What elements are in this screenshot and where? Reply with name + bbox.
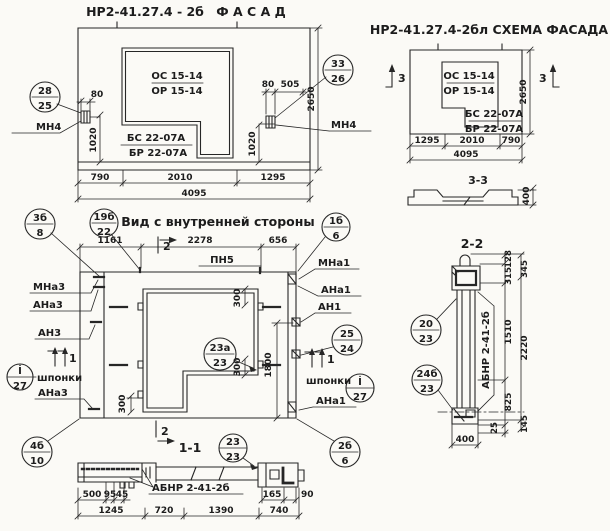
callout-i-27-left-num: İ — [18, 363, 22, 377]
label-ana1-low-leader — [299, 407, 356, 410]
dim-128: 128 — [504, 250, 514, 268]
callout-33-26-den: 26 — [331, 74, 345, 85]
schema-dim-1295: 1295 — [414, 136, 439, 146]
dim-1245: 1245 — [98, 506, 123, 516]
dim-1020-right-line — [259, 124, 275, 162]
dim-1295: 1295 — [260, 173, 285, 183]
label-shponki-left: шпонки — [37, 373, 82, 384]
dim-25: 25 — [490, 422, 500, 434]
schema-dim-2010: 2010 — [459, 136, 484, 146]
callout-19b-22-den: 22 — [97, 227, 111, 238]
schema-dim-4095: 4095 — [453, 150, 478, 160]
dim-90: 90 — [301, 490, 314, 500]
pn5-label: ПН5 — [210, 255, 234, 266]
callout-1b-6-den: 6 — [333, 231, 340, 242]
inner-top-dim-lines — [80, 244, 296, 272]
dim-500: 500 — [83, 490, 102, 500]
label-mna1-leader — [299, 269, 359, 279]
callout-i-27-right-num: İ — [358, 374, 362, 388]
callout-3b-8-num: 3б — [33, 212, 47, 224]
dim-2278: 2278 — [187, 236, 212, 246]
rib-anchor-marks-left — [89, 277, 104, 409]
section-3-3-profile — [408, 190, 518, 205]
s11-left-block — [78, 463, 142, 488]
dim-345: 345 — [520, 260, 530, 278]
callout-19b-22-num: 19б — [94, 211, 115, 223]
s11-label: АБНР 2-41-2б — [152, 482, 230, 494]
callout-2b-6-num: 2б — [338, 440, 352, 452]
dim-4095: 4095 — [181, 189, 206, 199]
schema-dim-790: 790 — [502, 136, 521, 146]
dim-1020-right: 1020 — [248, 131, 258, 156]
dim-80-left-lines — [77, 99, 95, 110]
callout-i-27-left-den: 27 — [13, 381, 27, 392]
section-1-1-drawing: 1-1 АБНР 2-41-2б 23 23 500 95 45 165 90 … — [75, 434, 314, 519]
right-edge-notches — [288, 274, 296, 412]
label-ana1: АНа1 — [321, 285, 351, 296]
callout-2b-6-den: 6 — [342, 456, 349, 467]
callout-25-24-num: 25 — [340, 329, 354, 340]
callout-20-23-num: 20 — [419, 319, 433, 330]
dim-790: 790 — [91, 173, 110, 183]
callout-20-23-den: 23 — [419, 334, 433, 345]
schema-title: НР2-41.27.4-2бл СХЕМА ФАСАДА — [370, 22, 608, 37]
section-3-label-right: 3 — [539, 72, 547, 85]
dim-80-505-lines — [262, 89, 306, 114]
section-2-arrow-bottom — [167, 438, 175, 444]
section-3-label-left: 3 — [398, 72, 406, 85]
label-an3: АН3 — [38, 328, 61, 339]
schema-drawing: НР2-41.27.4-2бл СХЕМА ФАСАДА ОС 15-14 ОР… — [370, 22, 608, 208]
callout-4b-10-den: 10 — [30, 456, 44, 467]
dim-740: 740 — [270, 506, 289, 516]
dim-165: 165 — [263, 490, 282, 500]
callout-23-23-den: 23 — [226, 452, 240, 463]
facade-panel-mark-top: БС 22-07А — [127, 133, 185, 144]
section-2-2-title: 2-2 — [461, 236, 484, 251]
inner-panel-outline — [80, 272, 296, 418]
s11-slab — [156, 467, 258, 480]
dim-2010: 2010 — [167, 173, 192, 183]
drawing-canvas: НР2-41.27.4 - 2б Ф А С А Д ОС 15-14 ОР 1… — [0, 0, 610, 531]
facade-opening-mark-bottom: ОР 15-14 — [151, 86, 202, 97]
label-ana3-low: АНа3 — [38, 388, 68, 399]
s11-channel-right — [283, 468, 293, 483]
dim-2650: 2650 — [307, 86, 317, 111]
dim-80-right: 80 — [262, 80, 275, 90]
inner-dim-ticks — [77, 244, 299, 421]
schema-opening-mark-bottom: ОР 15-14 — [443, 86, 494, 97]
anchor-left-label: МН4 — [36, 122, 61, 133]
anchor-left — [81, 111, 90, 123]
section-3-3-title: 3-3 — [468, 174, 488, 187]
label-ana3: АНа3 — [33, 300, 63, 311]
section-2-label-top: 2 — [163, 240, 171, 253]
schema-opening-mark-top: ОС 15-14 — [443, 71, 494, 82]
dim-505: 505 — [281, 80, 300, 90]
dim-400-s22: 400 — [456, 435, 475, 445]
dim-1800: 1800 — [264, 352, 274, 377]
inner-view-title: Вид с внутренней стороны — [121, 214, 314, 229]
dim-656: 656 — [269, 236, 288, 246]
callout-24b-23-den: 23 — [420, 384, 434, 395]
section-2-label-bottom: 2 — [161, 425, 169, 438]
label-an1: АН1 — [318, 302, 341, 313]
schema-panel-mark-top: БС 22-07А — [465, 109, 523, 120]
s22-rib-bar — [457, 290, 475, 408]
section-3-arrow-left — [389, 64, 395, 72]
anchor-right-label: МН4 — [331, 120, 356, 131]
s22-lifting-hook — [460, 255, 470, 266]
callout-3b-8-den: 8 — [37, 228, 44, 239]
inner-view-drawing: Вид с внутренней стороны 1161 2278 656 П… — [7, 209, 374, 467]
label-ana3-low-leader — [35, 399, 92, 408]
label-mna1: МНа1 — [318, 258, 350, 269]
callout-28-25-num: 28 — [38, 86, 52, 97]
section-3-arrow-right — [550, 64, 556, 72]
callout-i-27-right-den: 27 — [353, 392, 367, 403]
dim-315: 315 — [504, 267, 514, 285]
schema-dim-2650: 2650 — [519, 79, 529, 104]
facade-panel-mark-bottom: БР 22-07А — [129, 148, 187, 159]
schema-panel-mark-bottom: БР 22-07А — [465, 124, 523, 135]
pn5-leader — [199, 266, 261, 272]
dim-1510: 1510 — [504, 319, 514, 344]
dim-145: 145 — [520, 415, 530, 433]
label-ana1-low: АНа1 — [316, 396, 346, 407]
callout-1b-6-num: 1б — [329, 215, 343, 227]
callout-33-26-num: 33 — [331, 59, 345, 70]
section-1-label-left: 1 — [69, 352, 77, 365]
dim-720: 720 — [155, 506, 174, 516]
dim-300-a: 300 — [233, 289, 243, 308]
dim-95: 95 — [104, 490, 117, 500]
facade-opening-mark-top: ОС 15-14 — [151, 71, 202, 82]
s22-top-insert — [456, 271, 476, 285]
s22-label: АБНР 2-41-2б — [480, 311, 492, 389]
dim-300-c: 300 — [118, 395, 128, 414]
blueprint-page: НР2-41.27.4 - 2б Ф А С А Д ОС 15-14 ОР 1… — [0, 0, 610, 531]
anchor-right-leader — [276, 125, 371, 131]
section-1-label-right: 1 — [327, 353, 335, 366]
anchor-right — [266, 116, 275, 128]
facade-title: Ф А С А Д — [216, 4, 285, 19]
callout-23a-23-num: 23а — [210, 343, 231, 354]
dim-825: 825 — [504, 393, 514, 412]
callout-23-23-num: 23 — [226, 437, 240, 448]
dim-45: 45 — [116, 490, 129, 500]
opening-shear-tabs — [138, 303, 263, 398]
callout-24b-23-num: 24б — [417, 368, 438, 380]
section-3-3-dim-400: 400 — [522, 187, 532, 206]
label-shponki-right: шпонки — [306, 376, 351, 387]
callout-25-24-den: 24 — [340, 344, 354, 355]
callout-28-25-den: 25 — [38, 101, 52, 112]
callout-4b-10-num: 4б — [30, 440, 44, 452]
dim-1390: 1390 — [208, 506, 233, 516]
dim-2220: 2220 — [520, 335, 530, 360]
label-mna3: МНа3 — [33, 282, 65, 293]
facade-drawing: НР2-41.27.4 - 2б Ф А С А Д ОС 15-14 ОР 1… — [12, 4, 371, 202]
s11-right-block — [258, 463, 304, 487]
facade-code: НР2-41.27.4 - 2б — [86, 4, 204, 19]
dim-1020-left: 1020 — [89, 127, 99, 152]
section-2-2-drawing: 2-2 АБНР 2-41-2б 20 23 24б 23 128 315 34… — [411, 236, 530, 448]
section-1-1-title: 1-1 — [179, 440, 202, 455]
label-an1-leader — [301, 313, 351, 322]
callout-23a-23-den: 23 — [213, 358, 227, 369]
